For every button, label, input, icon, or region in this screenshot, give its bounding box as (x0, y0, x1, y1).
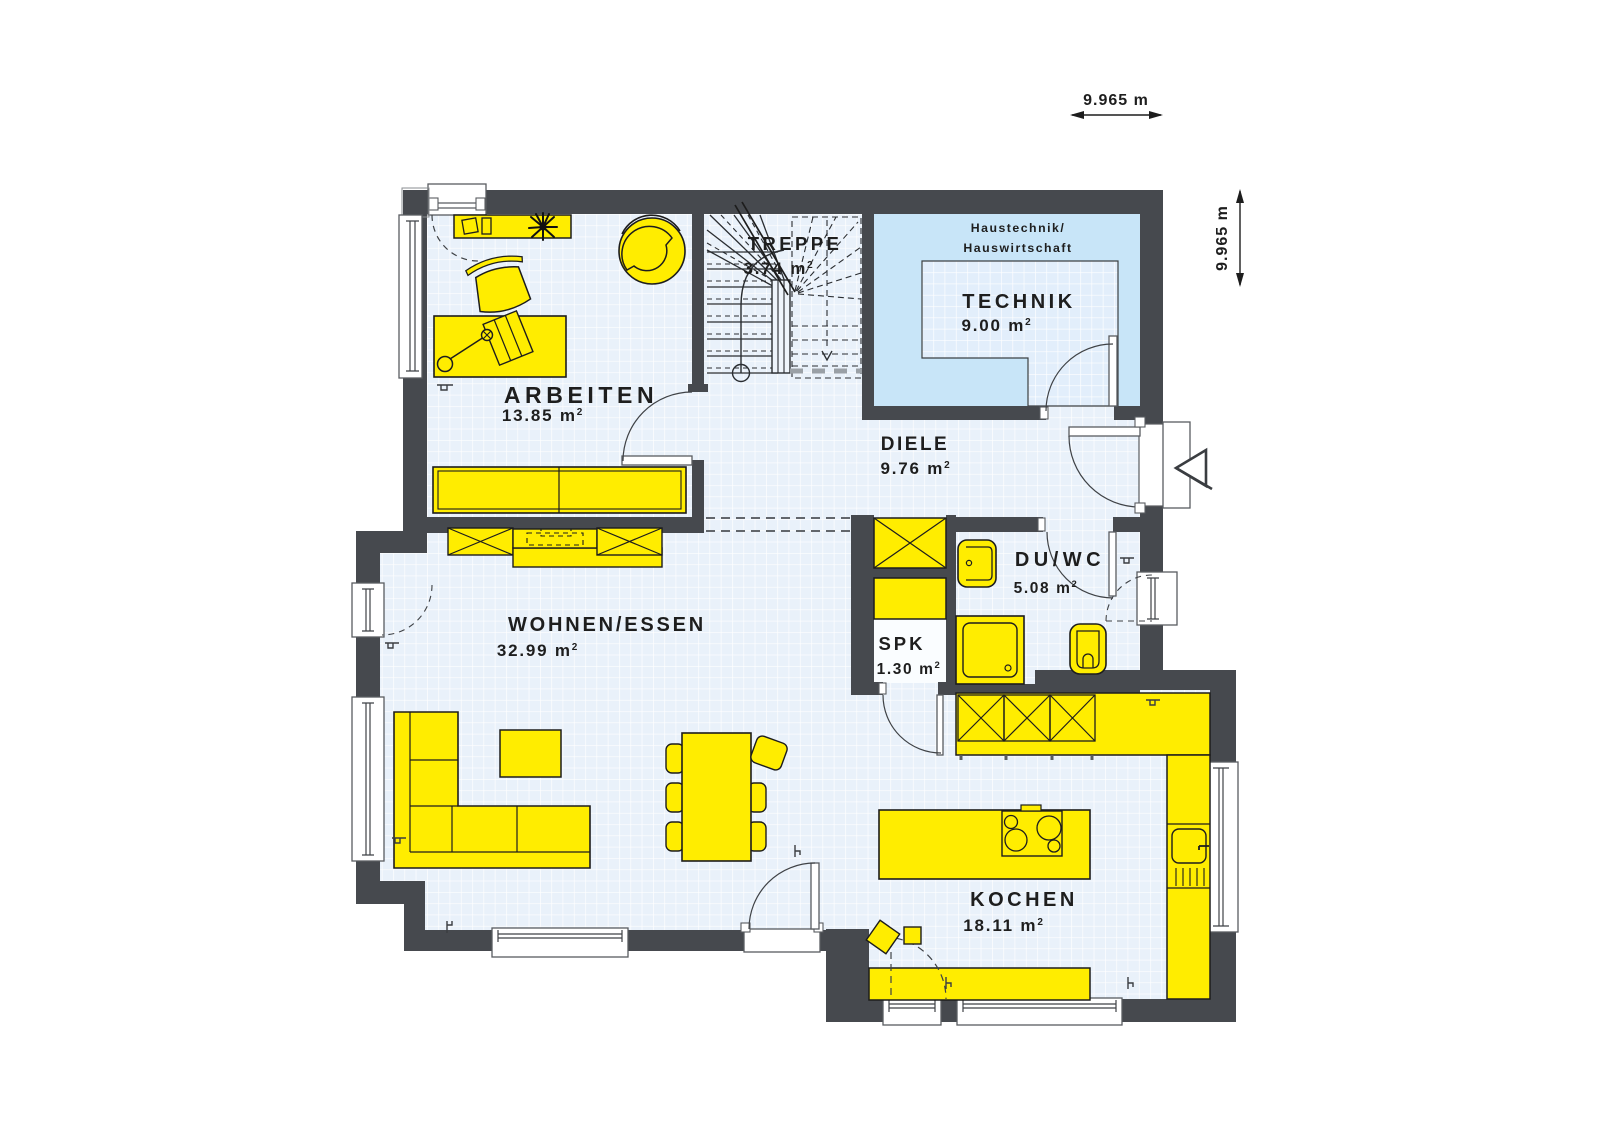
svg-text:SPK: SPK (878, 633, 925, 654)
svg-text:5.08 m2: 5.08 m2 (1014, 579, 1079, 597)
svg-text:KOCHEN: KOCHEN (970, 889, 1078, 911)
svg-text:13.85 m2: 13.85 m2 (502, 406, 584, 425)
svg-text:DIELE: DIELE (881, 434, 949, 455)
svg-text:9.965 m: 9.965 m (1083, 92, 1149, 109)
svg-text:9.76 m2: 9.76 m2 (880, 459, 951, 478)
svg-text:ARBEITEN: ARBEITEN (504, 382, 658, 408)
svg-text:Haustechnik/: Haustechnik/ (971, 221, 1066, 235)
svg-text:Hauswirtschaft: Hauswirtschaft (963, 241, 1072, 255)
svg-text:3.74 m2: 3.74 m2 (743, 259, 814, 278)
svg-text:TREPPE: TREPPE (748, 233, 842, 254)
svg-text:32.99 m2: 32.99 m2 (497, 641, 579, 660)
svg-text:TECHNIK: TECHNIK (962, 291, 1075, 313)
svg-text:9.00 m2: 9.00 m2 (961, 316, 1032, 335)
svg-text:1.30 m2: 1.30 m2 (877, 660, 942, 678)
svg-text:WOHNEN/ESSEN: WOHNEN/ESSEN (508, 614, 706, 636)
svg-text:9.965 m: 9.965 m (1214, 205, 1231, 271)
svg-text:DU/WC: DU/WC (1015, 549, 1105, 571)
svg-text:18.11 m2: 18.11 m2 (963, 916, 1044, 935)
